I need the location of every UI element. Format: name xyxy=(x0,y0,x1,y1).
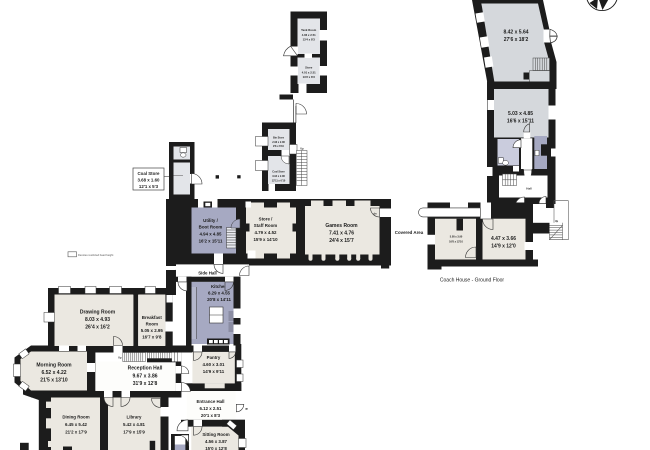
svg-text:Room: Room xyxy=(146,322,159,327)
svg-text:3.94 x 2.08: 3.94 x 2.08 xyxy=(272,175,285,178)
svg-text:9.67 x 3.86: 9.67 x 3.86 xyxy=(132,374,157,380)
svg-text:12'1 x 5'3: 12'1 x 5'3 xyxy=(139,184,159,189)
svg-text:Store /: Store / xyxy=(259,217,273,222)
svg-text:Denotes restricted head height: Denotes restricted head height xyxy=(78,253,114,257)
svg-text:5.05 x 2.95: 5.05 x 2.95 xyxy=(141,328,164,333)
svg-text:dn: dn xyxy=(373,213,377,216)
svg-text:Coach House - Ground Floor: Coach House - Ground Floor xyxy=(440,278,505,284)
svg-text:6.52 x 4.22: 6.52 x 4.22 xyxy=(41,370,66,376)
svg-text:13'2 x 8'3: 13'2 x 8'3 xyxy=(303,75,316,79)
svg-text:Boot Room: Boot Room xyxy=(199,225,223,230)
svg-text:5.03 x 4.85: 5.03 x 4.85 xyxy=(508,111,533,117)
svg-text:2.96 x 2.08: 2.96 x 2.08 xyxy=(272,141,285,144)
svg-text:16'6 x 15'11: 16'6 x 15'11 xyxy=(507,119,534,125)
svg-text:Dining Room: Dining Room xyxy=(62,415,89,420)
svg-text:up: up xyxy=(245,408,249,411)
svg-text:Side Hall: Side Hall xyxy=(198,271,217,276)
svg-text:Breakfast: Breakfast xyxy=(142,315,163,320)
svg-text:Reception Hall: Reception Hall xyxy=(128,366,163,372)
svg-text:21'5 x 13'10: 21'5 x 13'10 xyxy=(40,378,68,384)
svg-text:4.01 x 2.51: 4.01 x 2.51 xyxy=(302,70,316,74)
svg-text:16'2 x 15'11: 16'2 x 15'11 xyxy=(199,239,223,244)
svg-text:15'9 x 14'10: 15'9 x 14'10 xyxy=(253,237,278,242)
svg-text:7.41 x 4.76: 7.41 x 4.76 xyxy=(329,231,354,237)
svg-text:Games Room: Games Room xyxy=(325,223,358,229)
svg-text:15'0 x 12'8: 15'0 x 12'8 xyxy=(205,446,227,450)
svg-text:12'11 x 6'10: 12'11 x 6'10 xyxy=(272,179,286,182)
svg-text:Covered Area: Covered Area xyxy=(395,230,424,235)
svg-text:9'8 x 6'10: 9'8 x 6'10 xyxy=(273,145,285,148)
svg-text:8.03 x 4.93: 8.03 x 4.93 xyxy=(85,317,110,323)
svg-text:Up: Up xyxy=(300,148,304,151)
svg-text:5.08 x 3.90: 5.08 x 3.90 xyxy=(450,236,463,239)
svg-text:Entrance Hall: Entrance Hall xyxy=(196,399,224,404)
svg-text:14'9 x 9'11: 14'9 x 9'11 xyxy=(203,369,225,374)
svg-text:4.06 x 2.51: 4.06 x 2.51 xyxy=(302,33,316,37)
svg-text:4.79 x 4.52: 4.79 x 4.52 xyxy=(255,230,278,235)
svg-text:21'2 x 17'9: 21'2 x 17'9 xyxy=(65,430,87,435)
svg-text:Up: Up xyxy=(555,220,559,223)
svg-text:6.45 x 5.42: 6.45 x 5.42 xyxy=(65,422,88,427)
svg-text:17'9 x 15'9: 17'9 x 15'9 xyxy=(123,430,145,435)
svg-text:4.47 x 3.66: 4.47 x 3.66 xyxy=(491,236,516,242)
svg-text:Staff Room: Staff Room xyxy=(254,223,278,228)
svg-text:Drawing Room: Drawing Room xyxy=(80,310,116,316)
svg-text:16'7 x 9'8: 16'7 x 9'8 xyxy=(142,335,162,340)
svg-text:4.60 x 3.01: 4.60 x 3.01 xyxy=(203,362,226,367)
svg-text:Sitting Room: Sitting Room xyxy=(202,432,229,437)
svg-text:Hall: Hall xyxy=(526,187,531,191)
svg-text:5.42 x 4.81: 5.42 x 4.81 xyxy=(123,422,146,427)
svg-text:8.42 x 5.64: 8.42 x 5.64 xyxy=(503,30,528,36)
svg-text:Pantry: Pantry xyxy=(207,355,221,360)
svg-text:24'4 x 15'7: 24'4 x 15'7 xyxy=(329,238,354,244)
svg-text:Store: Store xyxy=(305,66,313,70)
svg-text:13'4 x 8'3: 13'4 x 8'3 xyxy=(303,38,316,42)
svg-text:Up: Up xyxy=(118,357,122,360)
svg-text:Coal Store: Coal Store xyxy=(272,170,285,173)
svg-text:Morning Room: Morning Room xyxy=(36,363,72,369)
svg-text:31'9 x 12'8: 31'9 x 12'8 xyxy=(133,381,158,387)
svg-text:Coal Store: Coal Store xyxy=(138,171,161,176)
svg-text:Tank Room: Tank Room xyxy=(301,28,317,32)
svg-text:Bin Store: Bin Store xyxy=(273,137,285,140)
svg-text:4.94 x 4.85: 4.94 x 4.85 xyxy=(200,232,223,237)
svg-text:3.68 x 1.60: 3.68 x 1.60 xyxy=(138,178,161,183)
svg-text:16'8 x 12'10: 16'8 x 12'10 xyxy=(449,240,463,243)
svg-text:6.12 x 2.51: 6.12 x 2.51 xyxy=(200,406,223,411)
svg-text:20'8 x 14'11: 20'8 x 14'11 xyxy=(207,297,231,302)
svg-text:Utility /: Utility / xyxy=(203,218,218,223)
svg-text:14'9 x 12'0: 14'9 x 12'0 xyxy=(491,244,516,250)
svg-text:Library: Library xyxy=(127,415,142,420)
svg-text:20'1 x 8'3: 20'1 x 8'3 xyxy=(201,413,221,418)
svg-text:4.56 x 3.87: 4.56 x 3.87 xyxy=(205,439,228,444)
svg-text:26'4 x 16'2: 26'4 x 16'2 xyxy=(85,325,110,331)
svg-text:27'6 x 18'2: 27'6 x 18'2 xyxy=(504,37,529,43)
svg-text:6.29 x 4.55: 6.29 x 4.55 xyxy=(208,291,231,296)
